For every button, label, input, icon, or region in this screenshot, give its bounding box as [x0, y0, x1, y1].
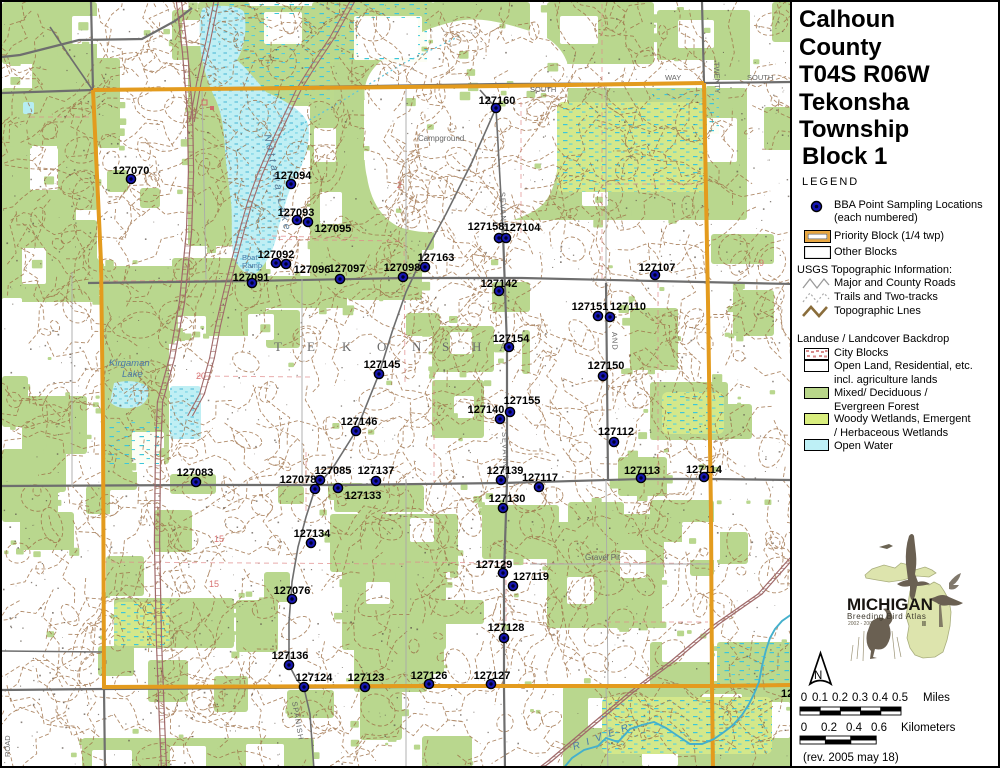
svg-text:127146: 127146: [341, 416, 378, 428]
svg-text:127137: 127137: [358, 465, 395, 477]
svg-text:H: H: [472, 339, 481, 354]
svg-text:Ramp: Ramp: [242, 261, 262, 270]
svg-text:0.2: 0.2: [821, 722, 837, 734]
svg-text:Miles: Miles: [923, 692, 950, 704]
svg-text:TWENTY: TWENTY: [712, 62, 722, 94]
svg-text:127112: 127112: [598, 426, 634, 438]
svg-text:127096: 127096: [294, 264, 331, 276]
svg-text:Kilometers: Kilometers: [901, 722, 956, 734]
svg-text:SOUTH: SOUTH: [747, 73, 773, 82]
svg-text:2: 2: [397, 180, 402, 190]
svg-text:9: 9: [759, 258, 764, 268]
svg-text:127139: 127139: [487, 465, 524, 477]
svg-text:S: S: [442, 339, 449, 354]
svg-text:127119: 127119: [513, 571, 549, 583]
svg-text:Campground: Campground: [418, 134, 464, 143]
svg-text:SOUTH: SOUTH: [530, 85, 556, 94]
svg-text:127129: 127129: [476, 559, 513, 571]
svg-text:2002 - 2007: 2002 - 2007: [848, 621, 875, 627]
svg-text:K: K: [342, 339, 352, 354]
svg-text:0.1: 0.1: [812, 692, 828, 704]
svg-text:0.3: 0.3: [852, 692, 868, 704]
svg-text:127133: 127133: [345, 490, 382, 502]
svg-text:0.6: 0.6: [871, 722, 887, 734]
svg-text:Breeding Bird Atlas: Breeding Bird Atlas: [847, 612, 926, 621]
svg-text:II: II: [922, 621, 926, 628]
svg-text:127078: 127078: [280, 474, 317, 486]
svg-text:0: 0: [801, 722, 807, 734]
svg-text:AND: AND: [610, 332, 620, 351]
svg-text:N: N: [412, 339, 422, 354]
svg-text:T: T: [274, 339, 282, 354]
svg-text:127155: 127155: [504, 395, 541, 407]
svg-text:N: N: [814, 670, 822, 682]
svg-text:Lake: Lake: [122, 369, 143, 380]
svg-text:127097: 127097: [329, 263, 366, 275]
svg-text:0: 0: [801, 692, 807, 704]
svg-text:127145: 127145: [364, 359, 401, 371]
svg-text:0.5: 0.5: [892, 692, 908, 704]
svg-text:Gravel Pit: Gravel Pit: [585, 553, 621, 562]
svg-text:0.4: 0.4: [846, 722, 863, 734]
svg-text:127095: 127095: [315, 223, 352, 235]
svg-text:O: O: [377, 339, 386, 354]
svg-text:15: 15: [209, 579, 219, 589]
svg-text:127110: 127110: [610, 301, 646, 313]
svg-text:127158: 127158: [468, 221, 505, 233]
svg-text:12: 12: [781, 688, 790, 700]
svg-text:127150: 127150: [588, 360, 625, 372]
svg-text:127104: 127104: [504, 222, 542, 234]
svg-text:0.4: 0.4: [872, 692, 889, 704]
svg-text:Kirgaman: Kirgaman: [109, 358, 150, 369]
svg-text:WAY: WAY: [665, 73, 681, 82]
svg-text:E: E: [307, 339, 315, 354]
svg-text:15: 15: [214, 534, 224, 544]
svg-text:127151: 127151: [572, 301, 609, 313]
svg-text:(rev. 2005 may 18): (rev. 2005 may 18): [803, 752, 899, 764]
svg-text:ROAD: ROAD: [3, 735, 12, 757]
svg-text:127130: 127130: [489, 493, 526, 505]
svg-text:0.2: 0.2: [832, 692, 848, 704]
svg-text:127128: 127128: [488, 622, 525, 634]
svg-text:127124: 127124: [296, 672, 334, 684]
